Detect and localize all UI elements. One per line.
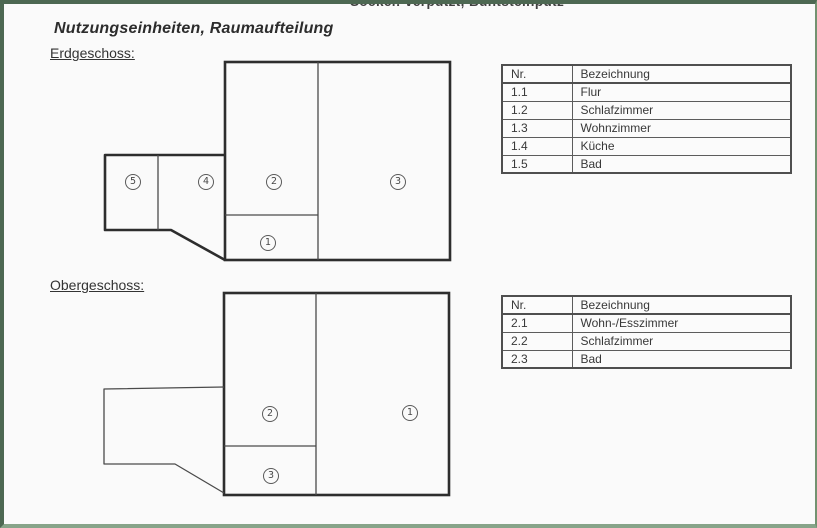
room-nr: 1.2 [502, 101, 572, 119]
obergeschoss-main-outline [224, 293, 449, 495]
floorplan-erdgeschoss-drawing [100, 57, 455, 272]
room-label-circle-4: 4 [198, 174, 214, 190]
column-header-bezeichnung: Bezeichnung [572, 65, 791, 83]
room-bezeichnung: Bad [572, 155, 791, 173]
room-bezeichnung: Schlafzimmer [572, 332, 791, 350]
table-header-row: Nr. Bezeichnung [502, 296, 791, 314]
room-label-circle-3: 3 [263, 468, 279, 484]
room-nr: 1.4 [502, 137, 572, 155]
room-label-circle-1: 1 [402, 405, 418, 421]
table-row: 1.3 Wohnzimmer [502, 119, 791, 137]
room-table-erdgeschoss: Nr. Bezeichnung 1.1 Flur 1.2 Schlafzimme… [501, 64, 792, 174]
erdgeschoss-annex-outline [105, 155, 225, 260]
table-row: 1.1 Flur [502, 83, 791, 101]
table-row: 1.2 Schlafzimmer [502, 101, 791, 119]
room-label-circle-5: 5 [125, 174, 141, 190]
room-label-circle-2: 2 [262, 406, 278, 422]
room-label-circle-2: 2 [266, 174, 282, 190]
room-nr: 1.5 [502, 155, 572, 173]
room-bezeichnung: Flur [572, 83, 791, 101]
table-row: 1.4 Küche [502, 137, 791, 155]
erdgeschoss-main-outline [225, 62, 450, 260]
table-header-row: Nr. Bezeichnung [502, 65, 791, 83]
page-title: Nutzungseinheiten, Raumaufteilung [54, 20, 334, 38]
floorplan-obergeschoss: 1 2 3 [99, 288, 454, 503]
column-header-nr: Nr. [502, 65, 572, 83]
room-bezeichnung: Bad [572, 350, 791, 368]
table-row: 2.3 Bad [502, 350, 791, 368]
scanned-document-page: Sockel: verputzt, Buntsteinputz Nutzungs… [0, 0, 817, 528]
room-label-circle-1: 1 [260, 235, 276, 251]
room-nr: 2.1 [502, 314, 572, 332]
room-nr: 2.3 [502, 350, 572, 368]
room-nr: 2.2 [502, 332, 572, 350]
room-label-circle-3: 3 [390, 174, 406, 190]
obergeschoss-annex-outline [104, 387, 224, 493]
clipped-header-text: Sockel: verputzt, Buntsteinputz [350, 0, 564, 9]
room-nr: 1.3 [502, 119, 572, 137]
column-header-nr: Nr. [502, 296, 572, 314]
room-bezeichnung: Schlafzimmer [572, 101, 791, 119]
table-row: 2.1 Wohn-/Esszimmer [502, 314, 791, 332]
room-bezeichnung: Wohnzimmer [572, 119, 791, 137]
table-row: 1.5 Bad [502, 155, 791, 173]
room-nr: 1.1 [502, 83, 572, 101]
room-table-obergeschoss: Nr. Bezeichnung 2.1 Wohn-/Esszimmer 2.2 … [501, 295, 792, 369]
column-header-bezeichnung: Bezeichnung [572, 296, 791, 314]
table-row: 2.2 Schlafzimmer [502, 332, 791, 350]
room-bezeichnung: Wohn-/Esszimmer [572, 314, 791, 332]
room-bezeichnung: Küche [572, 137, 791, 155]
floorplan-erdgeschoss: 1 2 3 4 5 [100, 57, 455, 272]
